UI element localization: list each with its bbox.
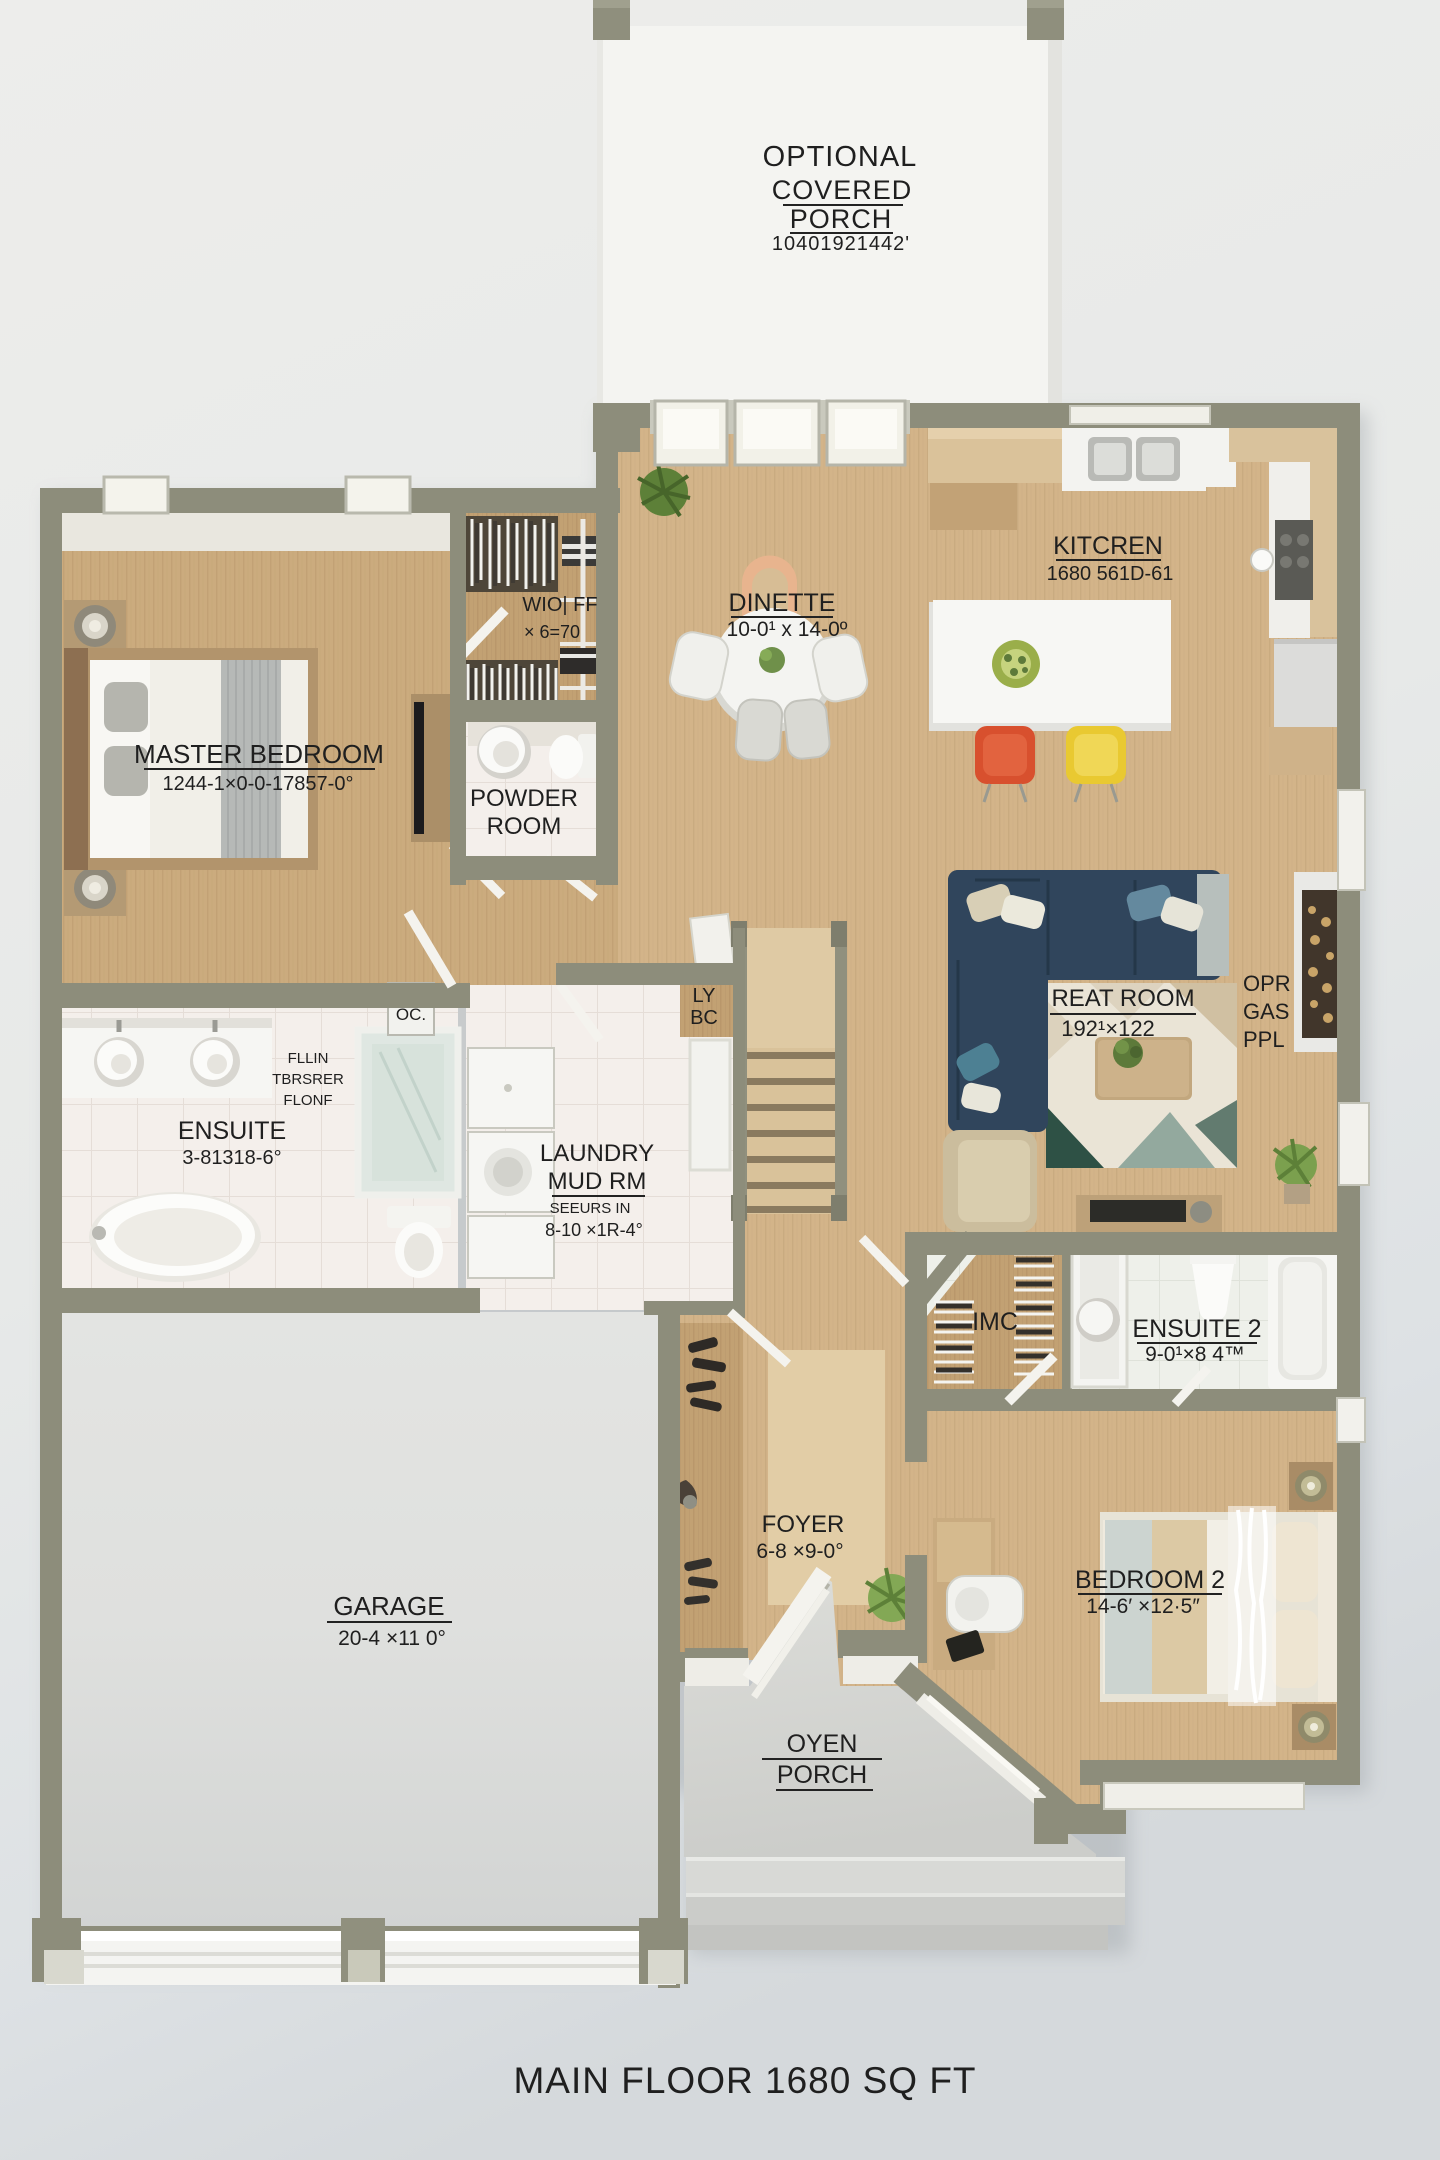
- svg-text:MAIN FLOOR 1680 SQ FT: MAIN FLOOR 1680 SQ FT: [513, 2060, 976, 2101]
- svg-text:10401921442': 10401921442': [772, 233, 910, 255]
- svg-text:1680 561D-61: 1680 561D-61: [1047, 563, 1174, 585]
- svg-text:WIO| FF: WIO| FF: [522, 594, 597, 616]
- svg-text:IMC: IMC: [972, 1308, 1018, 1336]
- svg-text:FLONF: FLONF: [283, 1092, 332, 1109]
- svg-text:DINETTE: DINETTE: [729, 589, 836, 617]
- svg-text:6-8 ×9-0°: 6-8 ×9-0°: [756, 1540, 843, 1563]
- svg-text:LY: LY: [693, 985, 716, 1007]
- svg-text:PORCH: PORCH: [790, 204, 893, 234]
- svg-text:LAUNDRY: LAUNDRY: [540, 1140, 654, 1167]
- svg-text:OPR: OPR: [1243, 971, 1291, 996]
- svg-text:20-4 ×11 0°: 20-4 ×11 0°: [338, 1627, 446, 1650]
- svg-text:1244-1×0-0-17857-0°: 1244-1×0-0-17857-0°: [163, 773, 354, 795]
- svg-text:KITCREN: KITCREN: [1053, 532, 1163, 560]
- svg-text:FOYER: FOYER: [762, 1511, 845, 1538]
- svg-text:MUD RM: MUD RM: [548, 1168, 647, 1195]
- svg-text:OYEN: OYEN: [787, 1730, 858, 1758]
- svg-text:GAS: GAS: [1243, 999, 1289, 1024]
- svg-text:ENSUITE 2: ENSUITE 2: [1132, 1315, 1261, 1343]
- svg-text:PPL: PPL: [1243, 1027, 1285, 1052]
- svg-text:OPTIONAL: OPTIONAL: [763, 141, 918, 173]
- svg-text:192¹×122: 192¹×122: [1061, 1016, 1155, 1041]
- svg-text:GARAGE: GARAGE: [333, 1591, 444, 1621]
- svg-text:POWDER: POWDER: [470, 785, 578, 812]
- svg-text:REAT ROOM: REAT ROOM: [1051, 985, 1194, 1012]
- svg-text:FLLIN: FLLIN: [288, 1050, 329, 1067]
- svg-text:SEEURS IN: SEEURS IN: [550, 1200, 631, 1217]
- svg-text:BEDROOM 2: BEDROOM 2: [1075, 1566, 1225, 1594]
- svg-text:ROOM: ROOM: [487, 813, 562, 840]
- svg-text:9-0¹×8 4™: 9-0¹×8 4™: [1145, 1343, 1245, 1366]
- svg-text:MASTER BEDROOM: MASTER BEDROOM: [134, 739, 384, 769]
- svg-text:3-81318-6°: 3-81318-6°: [182, 1147, 281, 1169]
- svg-text:ENSUITE: ENSUITE: [178, 1117, 286, 1145]
- svg-text:10-0¹ x 14-0º: 10-0¹ x 14-0º: [727, 618, 848, 641]
- svg-text:COVERED: COVERED: [772, 175, 913, 205]
- svg-text:PORCH: PORCH: [777, 1761, 867, 1789]
- svg-text:8-10 ×1R-4°: 8-10 ×1R-4°: [545, 1220, 643, 1240]
- svg-text:× 6=70: × 6=70: [524, 622, 580, 642]
- svg-text:14-6′ ×12·5″: 14-6′ ×12·5″: [1086, 1595, 1200, 1618]
- svg-text:TBRSRER: TBRSRER: [272, 1071, 344, 1088]
- svg-text:BC: BC: [690, 1007, 718, 1029]
